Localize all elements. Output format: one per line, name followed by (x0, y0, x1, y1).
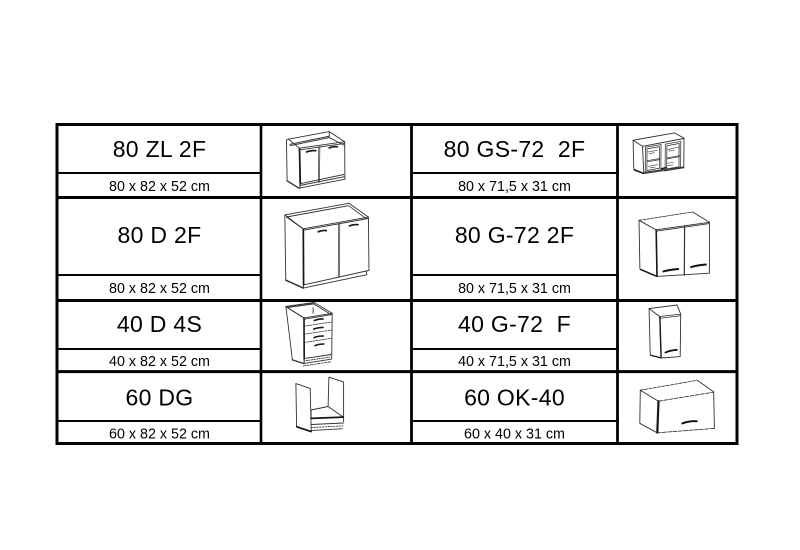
svg-text:80 x 71,5 x 31 cm: 80 x 71,5 x 31 cm (458, 281, 571, 297)
svg-text:40 x 71,5 x 31 cm: 40 x 71,5 x 31 cm (458, 354, 571, 370)
svg-text:40 x 82 x 52 cm: 40 x 82 x 52 cm (109, 354, 210, 370)
svg-text:80 x 82 x 52 cm: 80 x 82 x 52 cm (109, 179, 210, 195)
svg-text:60 DG: 60 DG (126, 385, 194, 411)
svg-text:80 x 82 x 52 cm: 80 x 82 x 52 cm (109, 281, 210, 297)
svg-text:80 ZL 2F: 80 ZL 2F (113, 136, 207, 162)
svg-text:40 D 4S: 40 D 4S (117, 311, 202, 337)
svg-text:80 GS-72 2F: 80 GS-72 2F (444, 136, 586, 162)
svg-text:60 x 40 x 31 cm: 60 x 40 x 31 cm (464, 426, 565, 442)
svg-text:60 x 82 x 52 cm: 60 x 82 x 52 cm (109, 426, 210, 442)
svg-text:80 D 2F: 80 D 2F (118, 222, 202, 248)
svg-text:60 OK-40: 60 OK-40 (464, 385, 565, 411)
svg-text:40 G-72 F: 40 G-72 F (458, 311, 571, 337)
svg-text:80 G-72 2F: 80 G-72 2F (455, 222, 574, 248)
svg-text:80 x 71,5 x 31 cm: 80 x 71,5 x 31 cm (458, 179, 571, 195)
